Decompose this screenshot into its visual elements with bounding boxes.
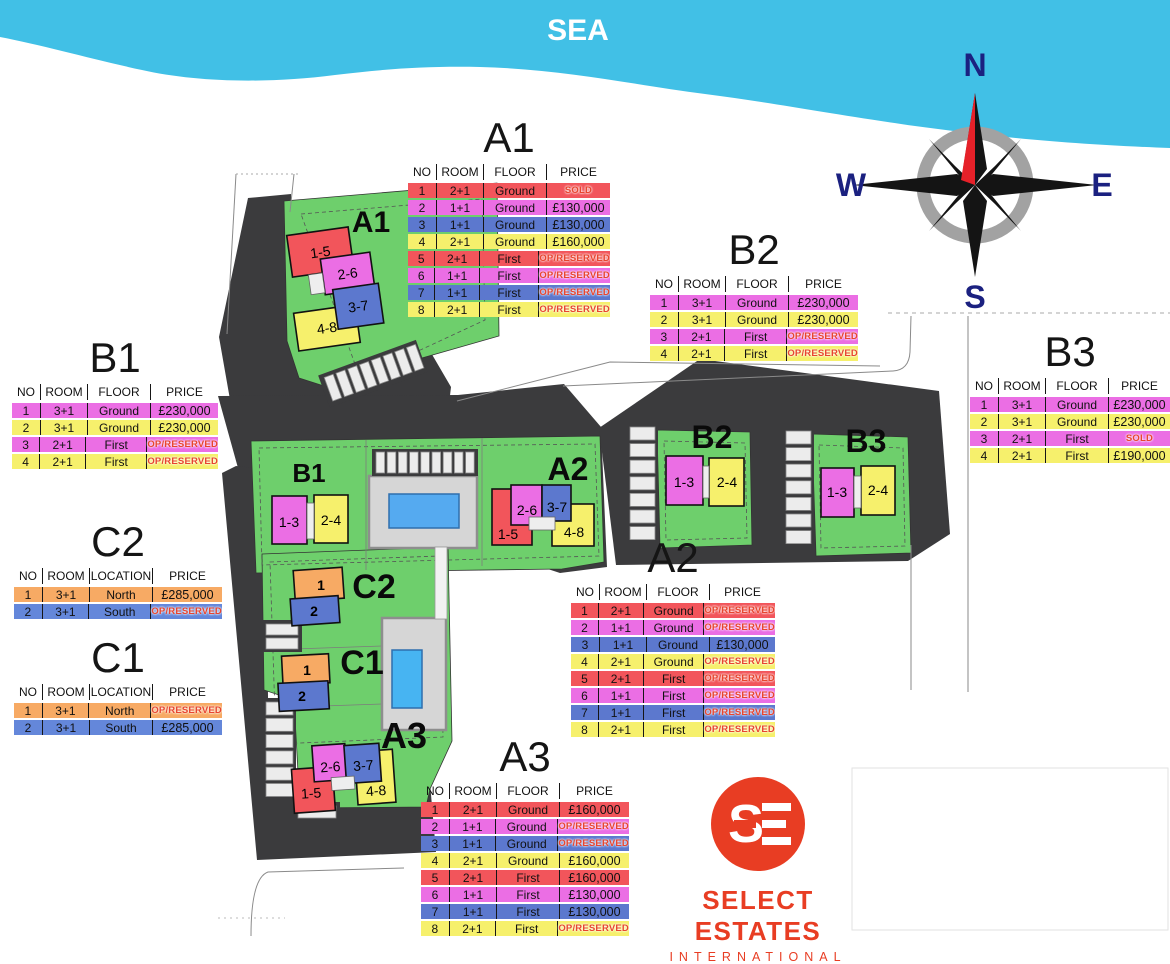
column-header-price: PRICE: [150, 384, 218, 400]
unit-row: 13+1Ground£230,000: [970, 397, 1170, 412]
unit-row: 13+1Ground£230,000: [12, 403, 218, 418]
price: OP/RESERVED: [703, 603, 775, 618]
room-type: 2+1: [998, 431, 1045, 446]
column-header-price: PRICE: [152, 684, 222, 700]
price: OP/RESERVED: [538, 302, 610, 317]
table-header-row: NOROOMFLOORPRICE: [970, 378, 1170, 394]
room-type: 3+1: [42, 587, 89, 602]
unit-no: 6: [408, 268, 434, 283]
unit-no: 1: [12, 403, 40, 418]
unit-row: 42+1Ground£160,000: [408, 234, 610, 249]
walkway: [435, 547, 447, 619]
floor-or-location: First: [496, 870, 559, 885]
column-header-room: ROOM: [42, 568, 89, 584]
room-type: 2+1: [678, 329, 724, 344]
room-type: 1+1: [598, 688, 643, 703]
table-title: B2: [650, 228, 858, 272]
unit-no: 2: [14, 604, 42, 619]
table-title: C1: [14, 636, 222, 680]
compass-s: S: [964, 279, 985, 315]
floor-or-location: First: [479, 285, 539, 300]
unit-no: 5: [421, 870, 449, 885]
room-type: 3+1: [998, 397, 1045, 412]
floor-or-location: First: [643, 688, 703, 703]
b1-block-2-4: 2-4: [321, 512, 341, 528]
table-b3: B3NOROOMFLOORPRICE13+1Ground£230,00023+1…: [970, 330, 1170, 465]
column-header-no: NO: [421, 783, 449, 799]
room-type: 3+1: [40, 420, 87, 435]
table-title: A1: [408, 116, 610, 160]
price: £230,000: [788, 295, 858, 310]
table-title: C2: [14, 520, 222, 564]
unit-row: 21+1GroundOP/RESERVED: [571, 620, 775, 635]
unit-row: 61+1FirstOP/RESERVED: [571, 688, 775, 703]
unit-no: 4: [421, 853, 449, 868]
room-type: 3+1: [40, 403, 87, 418]
unit-row: 31+1Ground£130,000: [571, 637, 775, 652]
room-type: 2+1: [449, 853, 496, 868]
table-title: B1: [12, 336, 218, 380]
logo-name: SELECT ESTATES: [655, 885, 861, 947]
unit-no: 3: [421, 836, 449, 851]
price: £160,000: [559, 853, 629, 868]
column-header-price: PRICE: [788, 276, 858, 292]
central-pool: [389, 494, 459, 528]
price: OP/RESERVED: [146, 454, 218, 469]
plot-label-a1: A1: [352, 206, 390, 239]
unit-row: 71+1FirstOP/RESERVED: [571, 705, 775, 720]
column-header-location: LOCATION: [89, 684, 152, 700]
price: £160,000: [546, 234, 610, 249]
table-header-row: NOROOMFLOORPRICE: [12, 384, 218, 400]
room-type: 1+1: [599, 637, 646, 652]
price: OP/RESERVED: [703, 654, 775, 669]
floor-or-location: First: [496, 904, 559, 919]
room-type: 1+1: [434, 285, 478, 300]
floor-or-location: Ground: [87, 403, 150, 418]
unit-row: 13+1NorthOP/RESERVED: [14, 703, 222, 718]
a3-block-1-5: 1-5: [300, 784, 322, 801]
unit-no: 1: [421, 802, 449, 817]
floor-or-location: Ground: [725, 295, 788, 310]
unit-row: 23+1SouthOP/RESERVED: [14, 604, 222, 619]
a3-block-2-6: 2-6: [320, 758, 342, 775]
table-c2: C2NOROOMLOCATIONPRICE13+1North£285,00023…: [14, 520, 222, 621]
column-header-no: NO: [571, 584, 599, 600]
room-type: 2+1: [449, 802, 496, 817]
unit-row: 23+1South£285,000: [14, 720, 222, 735]
column-header-room: ROOM: [436, 164, 483, 180]
unit-no: 2: [12, 420, 40, 435]
table-title: A2: [571, 536, 775, 580]
unit-row: 32+1FirstOP/RESERVED: [12, 437, 218, 452]
c2-block-2: 2: [310, 603, 318, 619]
room-type: 1+1: [598, 705, 643, 720]
price: £160,000: [559, 870, 629, 885]
unit-no: 1: [14, 587, 42, 602]
table-header-row: NOROOMLOCATIONPRICE: [14, 684, 222, 700]
c1-block-2: 2: [298, 688, 306, 704]
plot-label-b2: B2: [692, 419, 733, 455]
table-b1: B1NOROOMFLOORPRICE13+1Ground£230,00023+1…: [12, 336, 218, 471]
floor-or-location: Ground: [483, 183, 546, 198]
room-type: 2+1: [598, 603, 643, 618]
column-header-no: NO: [14, 684, 42, 700]
unit-no: 2: [14, 720, 42, 735]
room-type: 1+1: [449, 904, 496, 919]
room-type: 1+1: [598, 620, 643, 635]
price: OP/RESERVED: [150, 703, 222, 718]
unit-no: 2: [408, 200, 436, 215]
central-pool-area: [369, 476, 477, 548]
unit-no: 3: [650, 329, 678, 344]
unit-row: 61+1First£130,000: [421, 887, 629, 902]
table-title: A3: [421, 735, 629, 779]
plot-label-c2: C2: [352, 568, 395, 606]
floor-or-location: Ground: [725, 312, 788, 327]
b2-block-2-4: 2-4: [717, 474, 737, 490]
unit-no: 7: [571, 705, 598, 720]
b3-block-2-4: 2-4: [868, 482, 888, 498]
a3-block-4-8: 4-8: [365, 782, 387, 799]
room-type: 3+1: [678, 312, 725, 327]
unit-row: 42+1FirstOP/RESERVED: [12, 454, 218, 469]
column-header-price: PRICE: [559, 783, 629, 799]
unit-row: 21+1Ground£130,000: [408, 200, 610, 215]
price: £130,000: [546, 200, 610, 215]
floor-or-location: First: [724, 329, 786, 344]
table-a2: A2NOROOMFLOORPRICE12+1GroundOP/RESERVED2…: [571, 536, 775, 739]
room-type: 3+1: [998, 414, 1045, 429]
floor-or-location: Ground: [646, 637, 709, 652]
unit-no: 8: [408, 302, 434, 317]
column-header-room: ROOM: [40, 384, 87, 400]
unit-row: 42+1Ground£160,000: [421, 853, 629, 868]
price: £230,000: [788, 312, 858, 327]
unit-row: 31+1GroundOP/RESERVED: [421, 836, 629, 851]
a2-block-1-5: 1-5: [498, 526, 518, 542]
room-type: 2+1: [598, 671, 643, 686]
table-header-row: NOROOMFLOORPRICE: [571, 584, 775, 600]
column-header-no: NO: [12, 384, 40, 400]
unit-row: 32+1FirstOP/RESERVED: [650, 329, 858, 344]
table-c1: C1NOROOMLOCATIONPRICE13+1NorthOP/RESERVE…: [14, 636, 222, 737]
room-type: 1+1: [449, 819, 495, 834]
unit-row: 71+1FirstOP/RESERVED: [408, 285, 610, 300]
b3-block-1-3: 1-3: [827, 484, 847, 500]
unit-row: 23+1Ground£230,000: [650, 312, 858, 327]
table-header-row: NOROOMFLOORPRICE: [650, 276, 858, 292]
c2-block-1: 1: [317, 577, 325, 593]
unit-no: 3: [12, 437, 39, 452]
floor-or-location: Ground: [495, 836, 557, 851]
unit-row: 52+1FirstOP/RESERVED: [571, 671, 775, 686]
floor-or-location: Ground: [1045, 397, 1108, 412]
column-header-room: ROOM: [599, 584, 646, 600]
unit-row: 82+1FirstOP/RESERVED: [408, 302, 610, 317]
plot-label-c1: C1: [340, 644, 383, 682]
room-type: 2+1: [449, 921, 495, 936]
logo-monogram-icon: S: [710, 776, 806, 872]
floor-or-location: Ground: [495, 819, 557, 834]
unit-no: 1: [571, 603, 598, 618]
room-type: 3+1: [42, 604, 88, 619]
table-a1: A1NOROOMFLOORPRICE12+1GroundSOLD21+1Grou…: [408, 116, 610, 319]
column-header-floor: FLOOR: [483, 164, 546, 180]
room-type: 2+1: [436, 183, 483, 198]
table-header-row: NOROOMFLOORPRICE: [408, 164, 610, 180]
unit-row: 12+1GroundOP/RESERVED: [571, 603, 775, 618]
floor-or-location: Ground: [483, 234, 546, 249]
price: OP/RESERVED: [703, 705, 775, 720]
floor-or-location: Ground: [643, 654, 703, 669]
unit-no: 2: [571, 620, 598, 635]
room-type: 2+1: [998, 448, 1045, 463]
a2-block-2-6: 2-6: [517, 502, 537, 518]
plot-label-a2: A2: [548, 451, 589, 487]
unit-row: 71+1First£130,000: [421, 904, 629, 919]
blank-box: [852, 768, 1168, 930]
room-type: 1+1: [436, 217, 483, 232]
column-header-price: PRICE: [152, 568, 222, 584]
floor-or-location: First: [85, 437, 146, 452]
column-header-floor: FLOOR: [1045, 378, 1108, 394]
table-header-row: NOROOMFLOORPRICE: [421, 783, 629, 799]
unit-no: 3: [408, 217, 436, 232]
price: OP/RESERVED: [786, 346, 858, 361]
price: OP/RESERVED: [538, 285, 610, 300]
unit-no: 7: [421, 904, 449, 919]
room-type: 2+1: [678, 346, 724, 361]
unit-no: 1: [408, 183, 436, 198]
column-header-no: NO: [970, 378, 998, 394]
parking-b2: [627, 423, 658, 545]
floor-or-location: First: [643, 671, 703, 686]
floor-or-location: North: [88, 703, 150, 718]
parking-b3: [783, 427, 814, 549]
price: OP/RESERVED: [703, 620, 775, 635]
compass-e: E: [1091, 167, 1112, 203]
unit-row: 31+1Ground£130,000: [408, 217, 610, 232]
unit-no: 6: [571, 688, 598, 703]
room-type: 2+1: [449, 870, 496, 885]
column-header-no: NO: [14, 568, 42, 584]
unit-no: 2: [421, 819, 449, 834]
price: OP/RESERVED: [538, 251, 610, 266]
floor-or-location: Ground: [643, 620, 703, 635]
price: £230,000: [1108, 397, 1170, 412]
price: £130,000: [546, 217, 610, 232]
unit-row: 32+1FirstSOLD: [970, 431, 1170, 446]
plot-label-b1: B1: [292, 458, 325, 488]
floor-or-location: First: [496, 887, 559, 902]
price: OP/RESERVED: [557, 921, 629, 936]
room-type: 2+1: [434, 302, 478, 317]
room-type: 1+1: [449, 887, 496, 902]
unit-row: 23+1Ground£230,000: [12, 420, 218, 435]
column-header-no: NO: [650, 276, 678, 292]
column-header-price: PRICE: [1108, 378, 1170, 394]
column-header-price: PRICE: [709, 584, 775, 600]
room-type: 1+1: [449, 836, 495, 851]
a3-block-3-7: 3-7: [353, 757, 375, 774]
price: £230,000: [150, 403, 218, 418]
a1-block-1-5: 1-5: [309, 243, 331, 262]
c-pool: [392, 650, 422, 708]
unit-row: 52+1FirstOP/RESERVED: [408, 251, 610, 266]
compass-n: N: [963, 47, 986, 83]
price: £230,000: [150, 420, 218, 435]
unit-no: 4: [408, 234, 436, 249]
b1-block-1-3: 1-3: [279, 514, 299, 530]
unit-row: 21+1GroundOP/RESERVED: [421, 819, 629, 834]
sea-label: SEA: [547, 14, 609, 47]
logo-subtitle: INTERNATIONAL: [655, 950, 861, 964]
floor-or-location: First: [495, 921, 557, 936]
unit-no: 5: [571, 671, 598, 686]
floor-or-location: First: [643, 705, 703, 720]
price: £230,000: [1108, 414, 1170, 429]
floor-or-location: First: [1045, 431, 1108, 446]
floor-or-location: Ground: [643, 603, 703, 618]
column-header-floor: FLOOR: [725, 276, 788, 292]
price: £285,000: [152, 587, 222, 602]
floor-or-location: First: [85, 454, 146, 469]
unit-no: 1: [650, 295, 678, 310]
floor-or-location: First: [479, 302, 539, 317]
unit-row: 42+1First£190,000: [970, 448, 1170, 463]
price: OP/RESERVED: [703, 688, 775, 703]
floor-or-location: Ground: [1045, 414, 1108, 429]
floor-or-location: Ground: [496, 802, 559, 817]
unit-no: 1: [14, 703, 42, 718]
room-type: 1+1: [436, 200, 483, 215]
column-header-floor: FLOOR: [646, 584, 709, 600]
price: OP/RESERVED: [703, 671, 775, 686]
unit-row: 12+1Ground£160,000: [421, 802, 629, 817]
unit-row: 42+1FirstOP/RESERVED: [650, 346, 858, 361]
column-header-room: ROOM: [998, 378, 1045, 394]
floor-or-location: First: [1045, 448, 1108, 463]
unit-row: 23+1Ground£230,000: [970, 414, 1170, 429]
unit-no: 6: [421, 887, 449, 902]
column-header-floor: FLOOR: [87, 384, 150, 400]
column-header-floor: FLOOR: [496, 783, 559, 799]
floor-or-location: First: [724, 346, 786, 361]
room-type: 2+1: [39, 454, 85, 469]
price: OP/RESERVED: [703, 722, 775, 737]
room-type: 1+1: [434, 268, 478, 283]
unit-row: 82+1FirstOP/RESERVED: [421, 921, 629, 936]
column-header-price: PRICE: [546, 164, 610, 180]
floor-or-location: Ground: [87, 420, 150, 435]
unit-no: 7: [408, 285, 434, 300]
unit-row: 52+1First£160,000: [421, 870, 629, 885]
column-header-room: ROOM: [449, 783, 496, 799]
floor-or-location: Ground: [496, 853, 559, 868]
unit-no: 4: [970, 448, 998, 463]
parking-central: [372, 449, 478, 476]
price: £190,000: [1108, 448, 1170, 463]
unit-no: 4: [650, 346, 678, 361]
unit-row: 61+1FirstOP/RESERVED: [408, 268, 610, 283]
price: £130,000: [559, 904, 629, 919]
price: £130,000: [559, 887, 629, 902]
table-a3: A3NOROOMFLOORPRICE12+1Ground£160,00021+1…: [421, 735, 629, 938]
table-header-row: NOROOMLOCATIONPRICE: [14, 568, 222, 584]
price: £285,000: [152, 720, 222, 735]
unit-row: 13+1Ground£230,000: [650, 295, 858, 310]
room-type: 3+1: [678, 295, 725, 310]
a1-block-3-7: 3-7: [347, 297, 369, 316]
price: £130,000: [709, 637, 775, 652]
price: OP/RESERVED: [150, 604, 222, 619]
unit-no: 3: [970, 431, 998, 446]
unit-row: 12+1GroundSOLD: [408, 183, 610, 198]
table-title: B3: [970, 330, 1170, 374]
room-type: 2+1: [598, 654, 643, 669]
plot-label-b3: B3: [846, 423, 887, 459]
column-header-location: LOCATION: [89, 568, 152, 584]
column-header-room: ROOM: [42, 684, 89, 700]
floor-or-location: Ground: [483, 200, 546, 215]
a1-block-2-6: 2-6: [336, 264, 358, 283]
unit-no: 3: [571, 637, 599, 652]
b2-block-1-3: 1-3: [674, 474, 694, 490]
compass-w: W: [836, 167, 867, 203]
room-type: 3+1: [42, 720, 89, 735]
unit-no: 8: [421, 921, 449, 936]
floor-or-location: South: [88, 604, 150, 619]
column-header-no: NO: [408, 164, 436, 180]
price: SOLD: [1108, 431, 1170, 446]
price: OP/RESERVED: [146, 437, 218, 452]
unit-no: 4: [571, 654, 598, 669]
c1-block-1: 1: [303, 662, 311, 678]
unit-no: 5: [408, 251, 434, 266]
column-header-room: ROOM: [678, 276, 725, 292]
unit-no: 2: [970, 414, 998, 429]
room-type: 3+1: [42, 703, 88, 718]
unit-row: 13+1North£285,000: [14, 587, 222, 602]
floor-or-location: First: [479, 268, 539, 283]
a1-block-4-8: 4-8: [316, 318, 338, 337]
floor-or-location: First: [479, 251, 539, 266]
unit-no: 1: [970, 397, 998, 412]
unit-no: 4: [12, 454, 39, 469]
floor-or-location: North: [89, 587, 152, 602]
floor-or-location: Ground: [483, 217, 546, 232]
price: £160,000: [559, 802, 629, 817]
room-type: 2+1: [39, 437, 85, 452]
room-type: 2+1: [434, 251, 478, 266]
price: OP/RESERVED: [786, 329, 858, 344]
price: OP/RESERVED: [557, 836, 629, 851]
table-b2: B2NOROOMFLOORPRICE13+1Ground£230,00023+1…: [650, 228, 858, 363]
a2-block-3-7: 3-7: [547, 499, 567, 515]
unit-no: 2: [650, 312, 678, 327]
floor-or-location: First: [643, 722, 703, 737]
floor-or-location: South: [89, 720, 152, 735]
unit-row: 42+1GroundOP/RESERVED: [571, 654, 775, 669]
room-type: 2+1: [436, 234, 483, 249]
price: OP/RESERVED: [538, 268, 610, 283]
price: SOLD: [546, 183, 610, 198]
price: OP/RESERVED: [557, 819, 629, 834]
